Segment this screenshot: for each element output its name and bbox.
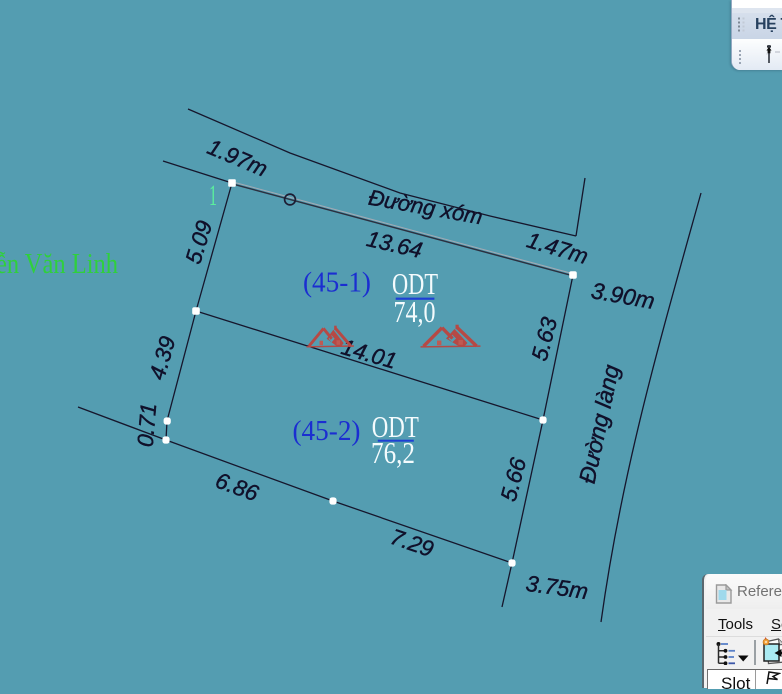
svg-text:(45-2): (45-2) bbox=[293, 415, 361, 447]
svg-text:6.86: 6.86 bbox=[212, 468, 262, 507]
svg-text:5.09: 5.09 bbox=[181, 217, 218, 267]
svg-text:4.39: 4.39 bbox=[144, 333, 180, 382]
svg-text:ễn Văn Linh: ễn Văn Linh bbox=[0, 248, 118, 280]
svg-text:74,0: 74,0 bbox=[394, 294, 436, 329]
svg-text:1.97m: 1.97m bbox=[204, 134, 271, 181]
svg-text:1: 1 bbox=[209, 179, 217, 212]
svg-text:0.71: 0.71 bbox=[133, 402, 162, 448]
svg-text:5.63: 5.63 bbox=[527, 314, 563, 363]
svg-text:Đường làng: Đường làng bbox=[574, 362, 625, 486]
svg-text:3.90m: 3.90m bbox=[589, 277, 656, 314]
svg-text:76,2: 76,2 bbox=[371, 435, 415, 470]
svg-text:3.75m: 3.75m bbox=[524, 571, 589, 604]
svg-text:7.29: 7.29 bbox=[387, 524, 437, 562]
svg-text:(45-1): (45-1) bbox=[303, 267, 371, 299]
